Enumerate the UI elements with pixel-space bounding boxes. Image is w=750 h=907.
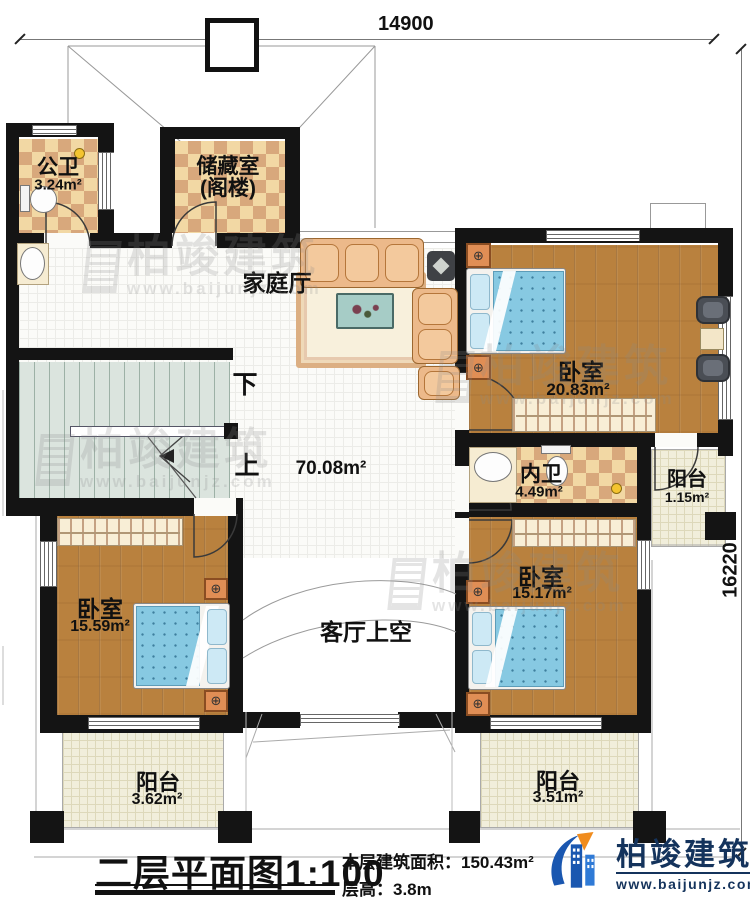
stair-up-label: 上 [234,446,259,482]
door-opening [655,433,697,447]
wall [697,433,733,447]
exterior-white [0,516,40,646]
brand-website: www.baijunjz.com [616,872,750,892]
floor-height-label: 层高： [342,880,393,899]
window [300,714,400,726]
void-label: 客厅上空 [320,613,412,647]
wardrobe [512,398,656,432]
column [30,811,64,843]
nightstand: ⊕ [466,355,491,380]
nightstand: ⊕ [466,692,490,716]
column [449,811,480,843]
nightstand: ⊕ [204,690,228,712]
floor-area-line: 本层建筑面积：150.43m² [342,848,534,873]
window [637,540,651,590]
window [32,125,77,135]
wall [228,516,243,731]
door-opening [455,518,469,564]
wall [6,348,233,360]
window-bay [650,203,706,230]
right-dimension-line [741,48,742,857]
window [40,541,57,587]
wash-basin [20,247,45,280]
lamp-icon [611,483,622,494]
wall [398,712,455,728]
brand-name: 柏竣建筑 [616,838,750,872]
toilet-tank [541,445,571,454]
side-table [427,251,455,281]
chair [696,354,730,382]
room-area-balcony-right: 1.15m² [665,489,709,505]
top-dimension-line [20,39,714,40]
armchair [418,366,460,400]
nightstand: ⊕ [466,580,490,604]
stair-handrail [70,426,228,437]
room-area-public-bath: 3.24m² [34,177,82,194]
nightstand: ⊕ [204,578,228,600]
window [490,717,602,729]
column [218,811,252,843]
wall [718,228,733,296]
door-opening [455,466,469,512]
sink-icon [474,452,512,482]
stair-post [224,423,238,439]
tea-table [700,328,724,350]
wall [285,127,300,233]
top-dimension-label: 14900 [378,13,434,36]
window [546,230,640,241]
window [98,152,114,210]
brand-logo-icon [546,832,608,898]
door-opening [194,498,236,516]
wall [469,503,651,517]
toilet-tank [20,185,30,212]
wall [6,360,19,500]
right-dimension-label: 16220 [720,542,743,598]
room-label-family-hall: 家庭厅 [243,264,312,298]
brand-logo: 柏竣建筑 www.baijunjz.com [546,832,750,898]
room-area-bedroom-tr: 20.83m² [546,380,609,400]
door-opening [44,233,90,248]
floor-area-value: 150.43m² [461,853,534,872]
sofa-right [412,288,458,364]
wall [160,127,175,233]
bed [468,606,566,690]
wall [637,588,651,733]
wall [637,503,651,540]
floor-area-label: 本层建筑面积： [342,853,461,872]
column [705,512,736,540]
title-underline [95,890,335,895]
room-area-inner-bath: 4.49m² [515,484,563,501]
chair [696,296,730,324]
coffee-table [336,293,394,329]
floor-height-line: 层高：3.8m [342,875,432,900]
room-area-balcony-br: 3.51m² [533,789,584,807]
chimney [205,18,259,72]
room-label-storage-2: (阁楼) [200,172,256,202]
title-underline [95,884,335,886]
sofa-top [300,238,424,288]
plan-title-text: 二层平面图 [95,853,285,894]
stair-down-label: 下 [232,365,257,401]
bed [133,603,230,689]
floor-plan-canvas: 14900 16220 [0,0,750,907]
room-area-balcony-bl: 3.62m² [132,791,183,809]
room-label-balcony-right: 阳台 [667,463,707,492]
bed [466,268,566,354]
wardrobe [57,518,183,546]
wall [160,127,300,139]
floor-height-value: 3.8m [393,880,432,899]
nightstand: ⊕ [466,243,491,268]
room-area-bedroom-br: 15.17m² [512,585,572,603]
wardrobe [512,519,636,547]
wall [243,712,300,728]
watermark-logo-icon [387,558,426,610]
hall-area-label: 70.08m² [296,458,367,480]
window [88,717,200,729]
room-area-bedroom-bl: 15.59m² [70,618,130,636]
door-opening [172,233,217,248]
